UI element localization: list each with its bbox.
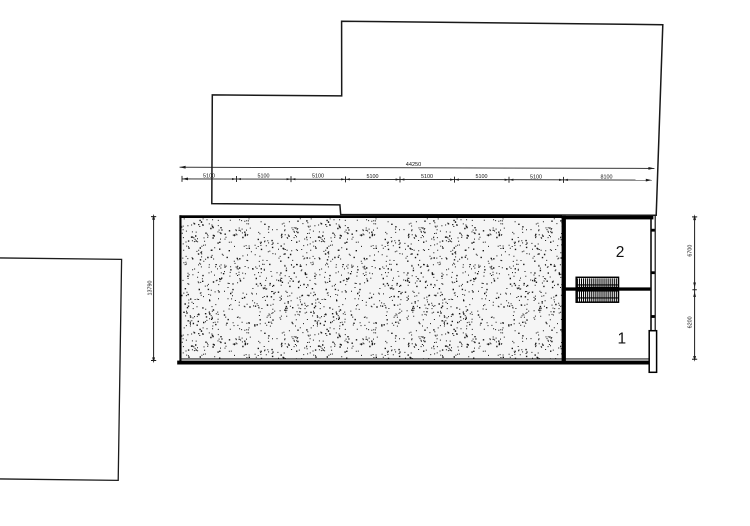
svg-text:2: 2 bbox=[616, 244, 625, 261]
svg-text:6700: 6700 bbox=[688, 245, 694, 257]
svg-text:13790: 13790 bbox=[147, 281, 153, 296]
svg-text:5100: 5100 bbox=[258, 174, 270, 180]
svg-text:5100: 5100 bbox=[476, 174, 488, 180]
svg-text:5100: 5100 bbox=[421, 174, 433, 180]
svg-text:5100: 5100 bbox=[530, 174, 542, 180]
svg-text:5100: 5100 bbox=[203, 174, 215, 180]
svg-text:6200: 6200 bbox=[688, 316, 694, 328]
svg-text:44250: 44250 bbox=[406, 162, 422, 168]
svg-text:5100: 5100 bbox=[312, 174, 324, 180]
svg-text:1: 1 bbox=[617, 331, 626, 348]
svg-text:8100: 8100 bbox=[601, 175, 613, 181]
svg-text:5100: 5100 bbox=[367, 174, 379, 180]
